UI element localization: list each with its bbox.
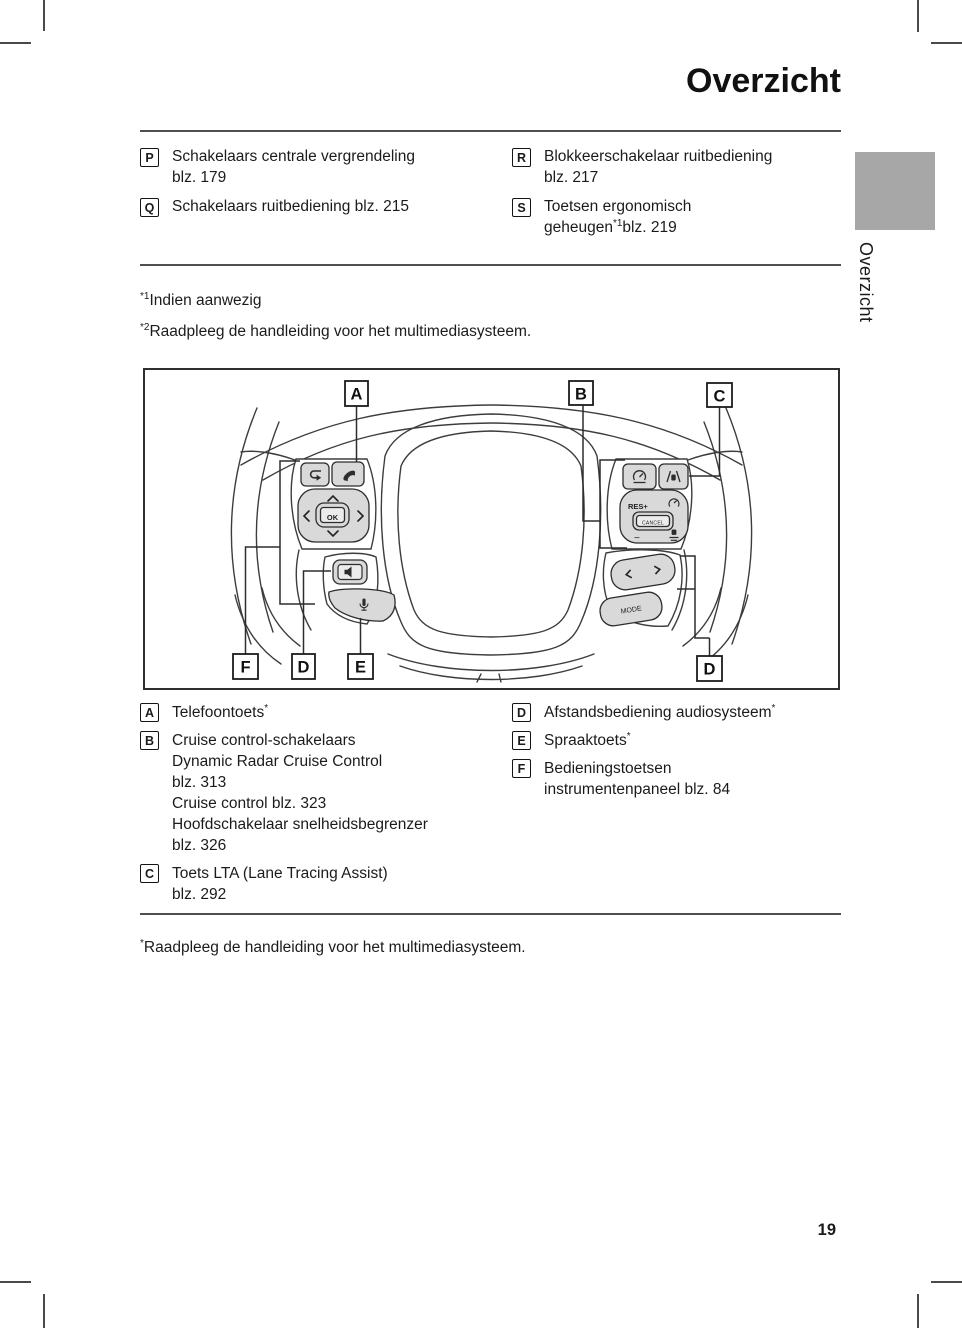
- footnote-marker: *: [771, 703, 775, 714]
- legend-key-box-E: E: [512, 731, 531, 750]
- top-legend-right-column: RBlokkeerschakelaar ruitbedieningblz. 21…: [512, 147, 852, 247]
- crop-mark-bottom-right-h: [931, 1281, 962, 1283]
- bottom-legend-rule: [140, 913, 841, 915]
- legend-item-F: FBedieningstoetseninstrumentenpaneel blz…: [512, 758, 852, 800]
- page-number: 19: [818, 1221, 836, 1240]
- legend-key-box-R: R: [512, 148, 531, 167]
- footnote-marker: *: [264, 703, 268, 714]
- legend-item-R: RBlokkeerschakelaar ruitbedieningblz. 21…: [512, 147, 852, 188]
- top-legend-left-column: PSchakelaars centrale vergrendelingblz. …: [140, 147, 505, 227]
- legend-item-E: ESpraaktoets*: [512, 730, 852, 751]
- footnote-marker: *: [627, 731, 631, 742]
- legend-item-P: PSchakelaars centrale vergrendelingblz. …: [140, 147, 505, 188]
- callout-letter-E: E: [355, 659, 366, 677]
- legend-item-C: CToets LTA (Lane Tracing Assist)blz. 292: [140, 863, 505, 905]
- top-legend-bottom-rule: [140, 264, 841, 266]
- bottom-footnote: *Raadpleeg de handleiding voor het multi…: [140, 939, 526, 957]
- crop-mark-top-right-v: [917, 0, 919, 32]
- footnote-marker: *2: [140, 321, 149, 332]
- crop-mark-top-left-h: [0, 42, 31, 44]
- legend-text: Toets LTA (Lane Tracing Assist)blz. 292: [172, 863, 388, 905]
- bottom-legend-left-column: ATelefoontoets*BCruise control-schakelaa…: [140, 702, 505, 912]
- legend-item-D: DAfstandsbediening audiosysteem*: [512, 702, 852, 723]
- crop-mark-bottom-left-h: [0, 1281, 31, 1283]
- legend-text: Toetsen ergonomischgeheugen*1blz. 219: [544, 197, 691, 238]
- res-plus-label: RES+: [628, 502, 648, 511]
- legend-text: Schakelaars ruitbediening blz. 215: [172, 197, 409, 218]
- cancel-label: CANCEL: [642, 521, 664, 527]
- callout-letter-C: C: [714, 388, 726, 406]
- chapter-tab-label: Overzicht: [855, 242, 876, 323]
- callout-letter-D-left: D: [298, 659, 310, 677]
- steering-wheel-illustration: OK: [145, 370, 838, 688]
- callout-letter-B: B: [575, 386, 587, 404]
- legend-key-box-S: S: [512, 198, 531, 217]
- legend-key-box-P: P: [140, 148, 159, 167]
- chapter-tab-marker: [855, 152, 935, 230]
- legend-text: Telefoontoets*: [172, 702, 268, 723]
- steering-wheel-figure: OK: [143, 368, 840, 690]
- crop-mark-top-right-h: [931, 42, 962, 44]
- crop-mark-top-left-v: [43, 0, 45, 31]
- legend-key-box-B: B: [140, 731, 159, 750]
- mid-footnotes: *1Indien aanwezig*2Raadpleeg de handleid…: [140, 291, 531, 352]
- legend-key-box-C: C: [140, 864, 159, 883]
- header-rule: [140, 130, 841, 132]
- footnote-line: *1Indien aanwezig: [140, 291, 531, 312]
- crop-mark-bottom-left-v: [43, 1294, 45, 1328]
- footnote-marker: *: [140, 938, 144, 949]
- legend-key-box-F: F: [512, 759, 531, 778]
- legend-text: Bedieningstoetseninstrumentenpaneel blz.…: [544, 758, 730, 800]
- legend-item-S: SToetsen ergonomischgeheugen*1blz. 219: [512, 197, 852, 238]
- legend-item-Q: QSchakelaars ruitbediening blz. 215: [140, 197, 505, 218]
- legend-key-box-A: A: [140, 703, 159, 722]
- return-button: [301, 463, 329, 486]
- legend-key-box-Q: Q: [140, 198, 159, 217]
- legend-text: Blokkeerschakelaar ruitbedieningblz. 217: [544, 147, 772, 188]
- voice-button: [329, 589, 395, 621]
- callout-letter-A: A: [351, 386, 363, 404]
- legend-text: Spraaktoets*: [544, 730, 631, 751]
- legend-text: Afstandsbediening audiosysteem*: [544, 702, 775, 723]
- callout-letter-D-right: D: [704, 661, 716, 679]
- left-cluster: [298, 462, 369, 542]
- footnote-marker: *1: [613, 217, 622, 228]
- legend-text: Cruise control-schakelaarsDynamic Radar …: [172, 730, 428, 856]
- footnote-line: *2Raadpleeg de handleiding voor het mult…: [140, 322, 531, 343]
- legend-item-A: ATelefoontoets*: [140, 702, 505, 723]
- manual-page: Overzicht Overzicht PSchakelaars central…: [0, 0, 962, 1328]
- bottom-legend-right-column: DAfstandsbediening audiosysteem*ESpraakt…: [512, 702, 852, 807]
- legend-text: Schakelaars centrale vergrendelingblz. 1…: [172, 147, 415, 188]
- legend-key-box-D: D: [512, 703, 531, 722]
- page-title: Overzicht: [686, 62, 841, 101]
- callout-letter-F: F: [240, 659, 250, 677]
- legend-item-B: BCruise control-schakelaarsDynamic Radar…: [140, 730, 505, 856]
- footnote-marker: *1: [140, 291, 149, 302]
- ok-label: OK: [327, 513, 339, 522]
- minus-label: −: [634, 533, 640, 544]
- crop-mark-bottom-right-v: [917, 1294, 919, 1328]
